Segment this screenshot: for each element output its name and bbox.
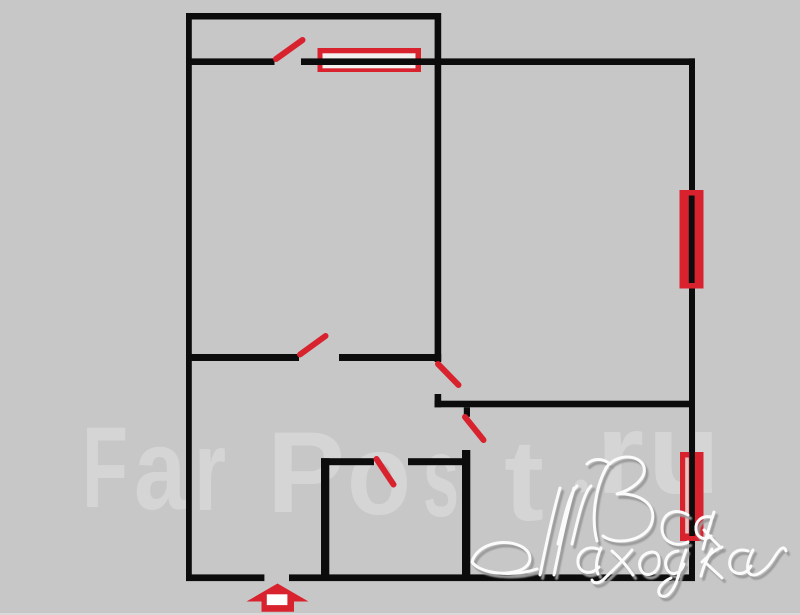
svg-text:P: P bbox=[267, 409, 345, 537]
svg-text:F: F bbox=[82, 404, 128, 532]
svg-text:o: o bbox=[347, 411, 411, 539]
svg-text:s: s bbox=[423, 413, 459, 541]
svg-text:t: t bbox=[504, 417, 544, 545]
svg-text:r: r bbox=[194, 407, 226, 535]
svg-text:a: a bbox=[134, 406, 187, 534]
